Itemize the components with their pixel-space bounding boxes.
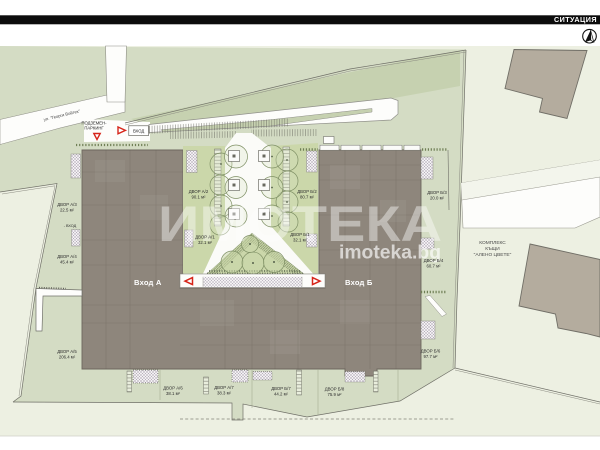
svg-text:- ВХОД: - ВХОД: [64, 224, 77, 228]
svg-text:44.2 м²: 44.2 м²: [274, 392, 289, 397]
svg-text:ДВОР А/4: ДВОР А/4: [57, 254, 77, 259]
svg-text:38.1 м²: 38.1 м²: [166, 391, 181, 396]
svg-text:ВХОД: ВХОД: [133, 129, 144, 134]
svg-text:206.4 м²: 206.4 м²: [59, 355, 76, 360]
svg-text:ДВОР А/6: ДВОР А/6: [163, 386, 183, 391]
svg-text:КОМПЛЕКС: КОМПЛЕКС: [479, 240, 506, 246]
svg-text:97.7 м²: 97.7 м²: [424, 354, 439, 359]
svg-text:ДВОР А/5: ДВОР А/5: [57, 349, 77, 354]
svg-text:ДВОР Б/4: ДВОР Б/4: [424, 258, 444, 263]
svg-text:22.5 м²: 22.5 м²: [60, 208, 75, 213]
svg-text:45.4 м²: 45.4 м²: [60, 260, 75, 265]
svg-text:38.3 м²: 38.3 м²: [217, 391, 232, 396]
svg-text:Вход Б: Вход Б: [345, 278, 373, 287]
svg-text:Вход А: Вход А: [134, 278, 162, 287]
svg-text:ДВОР Б/1: ДВОР Б/1: [290, 232, 310, 237]
svg-text:ДВОР А/2: ДВОР А/2: [189, 189, 209, 194]
svg-text:ДВОР Б/8: ДВОР Б/8: [325, 387, 345, 392]
svg-text:ДВОР Б/6: ДВОР Б/6: [421, 349, 441, 354]
svg-text:ДВОР Б/3: ДВОР Б/3: [427, 190, 447, 195]
svg-text:32.1 м²: 32.1 м²: [293, 238, 308, 243]
svg-text:80.7 м²: 80.7 м²: [300, 195, 315, 200]
svg-text:СИТУАЦИЯ: СИТУАЦИЯ: [554, 15, 597, 24]
svg-text:90.1 м²: 90.1 м²: [192, 195, 207, 200]
svg-text:32.1 м²: 32.1 м²: [198, 240, 213, 245]
svg-text:ДВОР Б/7: ДВОР Б/7: [271, 386, 291, 391]
svg-text:"АЛЕНО ЦВЕТЕ": "АЛЕНО ЦВЕТЕ": [474, 252, 512, 258]
svg-text:60.7 м²: 60.7 м²: [427, 264, 442, 269]
svg-text:ДВОР А/7: ДВОР А/7: [214, 385, 234, 390]
svg-text:75.9 м²: 75.9 м²: [328, 392, 343, 397]
svg-text:ДВОР А/1: ДВОР А/1: [195, 235, 215, 240]
svg-text:ПАРКИНГ: ПАРКИНГ: [84, 125, 104, 130]
svg-text:20.0 м²: 20.0 м²: [430, 196, 445, 201]
svg-text:ДВОР А/3: ДВОР А/3: [57, 202, 77, 207]
svg-text:ДВОР Б/2: ДВОР Б/2: [297, 189, 317, 194]
svg-text:КЪЩИ: КЪЩИ: [485, 246, 500, 252]
